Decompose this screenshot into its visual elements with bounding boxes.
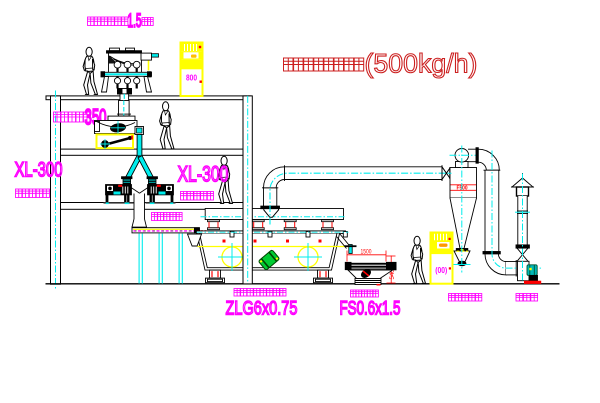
svg-text:XL-300: XL-300	[15, 158, 63, 181]
svg-text:1.5: 1.5	[128, 11, 142, 32]
svg-text:(00): (00)	[435, 265, 447, 275]
svg-text:XL-300: XL-300	[178, 163, 229, 187]
svg-text:(500kg/h): (500kg/h)	[365, 48, 478, 78]
svg-text:FS0.6x1.5: FS0.6x1.5	[340, 298, 401, 319]
svg-text:800: 800	[186, 73, 197, 83]
svg-text:1500: 1500	[361, 249, 372, 256]
svg-text:ZLG6x0.75: ZLG6x0.75	[226, 298, 298, 319]
